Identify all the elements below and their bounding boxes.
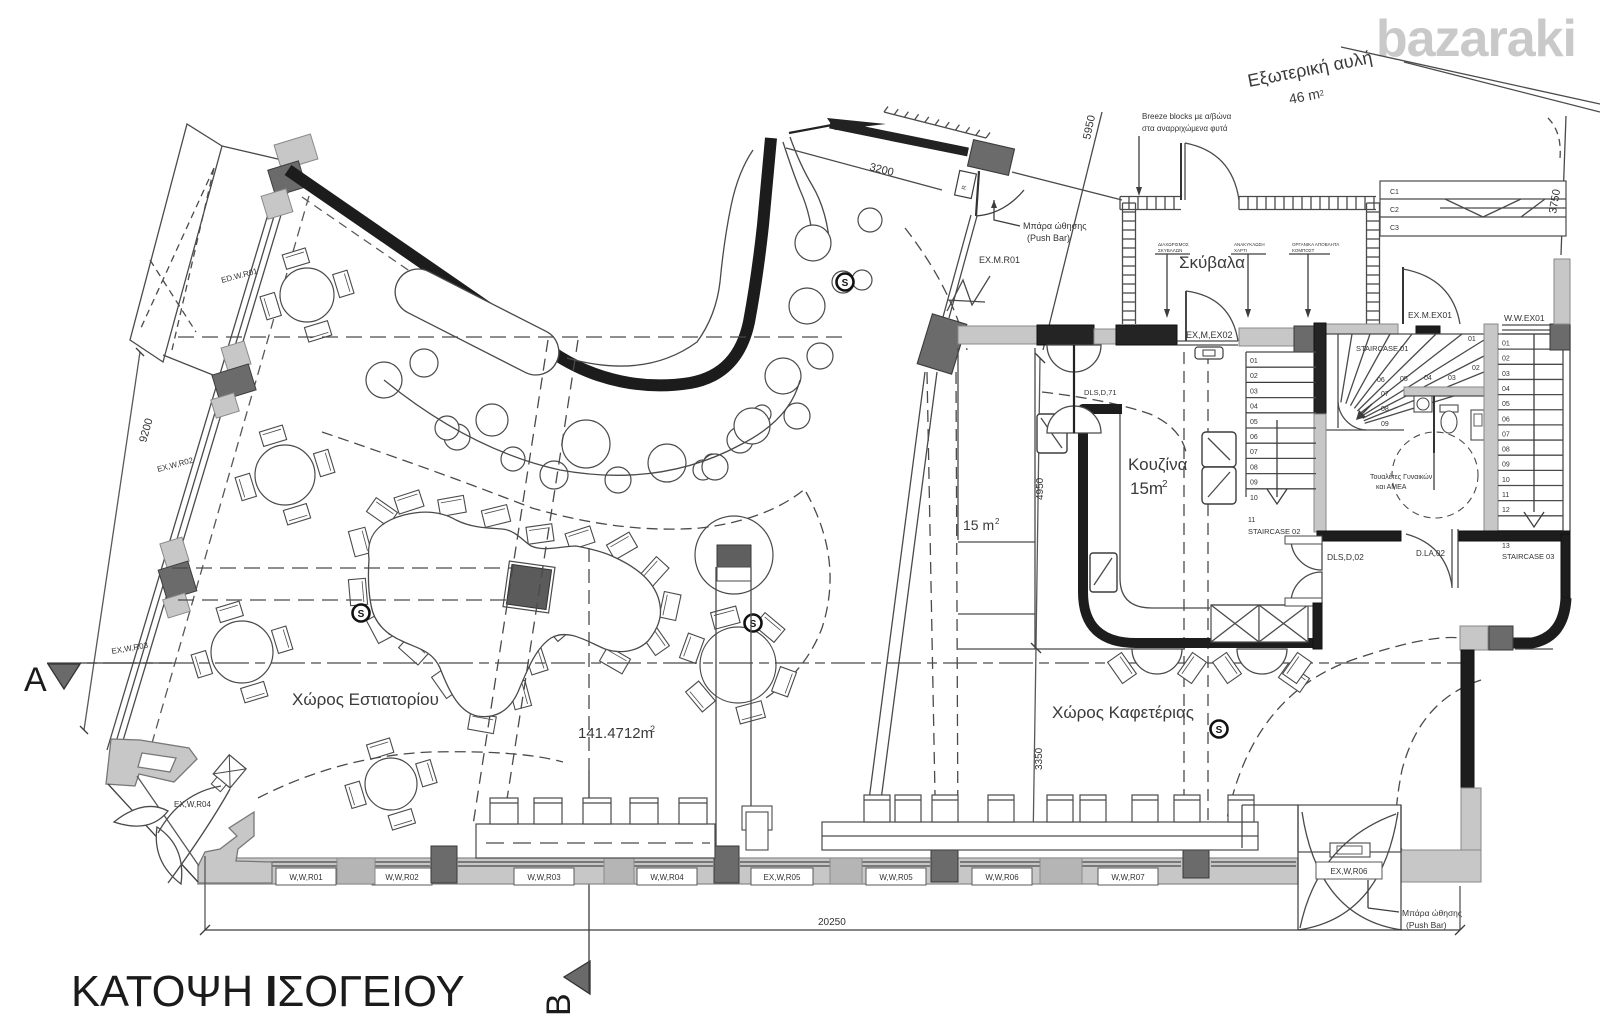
svg-text:09: 09: [1502, 462, 1510, 469]
svg-text:15 m: 15 m: [963, 517, 994, 533]
svg-text:C1: C1: [1390, 189, 1399, 196]
svg-text:S: S: [358, 609, 365, 620]
svg-text:Κουζίνα: Κουζίνα: [1128, 455, 1188, 474]
svg-text:S: S: [842, 278, 849, 289]
svg-text:ΣΚΥΒΑΛΩΝ: ΣΚΥΒΑΛΩΝ: [1158, 248, 1182, 253]
svg-text:06: 06: [1250, 434, 1258, 441]
svg-text:EX.M.EX01: EX.M.EX01: [1408, 310, 1452, 320]
svg-text:D.LA,02: D.LA,02: [1416, 549, 1445, 558]
svg-text:07: 07: [1381, 391, 1389, 398]
svg-text:08: 08: [1502, 447, 1510, 454]
svg-text:04: 04: [1424, 375, 1432, 382]
svg-text:(Push Bar): (Push Bar): [1027, 233, 1070, 243]
svg-text:10: 10: [1502, 477, 1510, 484]
svg-text:15m: 15m: [1130, 479, 1163, 498]
svg-text:W,W,R04: W,W,R04: [650, 873, 684, 882]
svg-text:W,W,R05: W,W,R05: [879, 873, 913, 882]
svg-text:Χώρος Καφετέριας: Χώρος Καφετέριας: [1052, 703, 1194, 722]
svg-text:Χώρος Εστιατορίου: Χώρος Εστιατορίου: [292, 690, 439, 709]
svg-text:EX.M.R01: EX.M.R01: [979, 255, 1020, 265]
svg-text:STAIRCASE 01: STAIRCASE 01: [1356, 344, 1408, 353]
svg-text:05: 05: [1502, 401, 1510, 408]
svg-text:3350: 3350: [1034, 747, 1045, 770]
svg-text:09: 09: [1250, 480, 1258, 487]
svg-text:20250: 20250: [818, 917, 846, 928]
svg-text:Breeze blocks με α/βώνα: Breeze blocks με α/βώνα: [1142, 112, 1232, 121]
svg-text:05: 05: [1250, 419, 1258, 426]
svg-text:10: 10: [1250, 495, 1258, 502]
svg-text:05: 05: [1400, 376, 1408, 383]
svg-text:04: 04: [1250, 404, 1258, 411]
svg-text:και ΑΜΕΑ: και ΑΜΕΑ: [1376, 484, 1407, 491]
svg-text:Μπάρα ώθησης: Μπάρα ώθησης: [1023, 221, 1087, 231]
svg-text:01: 01: [1468, 336, 1476, 343]
svg-text:Σκύβαλα: Σκύβαλα: [1179, 253, 1245, 272]
svg-text:ΔΙΑΧΩΡΙΣΜΟΣ: ΔΙΑΧΩΡΙΣΜΟΣ: [1158, 242, 1189, 247]
svg-text:02: 02: [1472, 365, 1480, 372]
svg-text:DLS,D,71: DLS,D,71: [1084, 388, 1117, 397]
svg-text:ΧΑΡΤΙ: ΧΑΡΤΙ: [1234, 248, 1247, 253]
svg-text:EX,W,R06: EX,W,R06: [1331, 867, 1368, 876]
svg-text:03: 03: [1448, 375, 1456, 382]
svg-text:ΚΟΜΠΟΣΤ: ΚΟΜΠΟΣΤ: [1292, 248, 1315, 253]
svg-text:13: 13: [1502, 543, 1510, 550]
svg-text:03: 03: [1502, 371, 1510, 378]
svg-text:EX,W,R05: EX,W,R05: [764, 873, 801, 882]
svg-text:C2: C2: [1390, 207, 1399, 214]
svg-text:03: 03: [1250, 388, 1258, 395]
svg-text:DLS,D,02: DLS,D,02: [1327, 552, 1364, 562]
svg-text:07: 07: [1502, 431, 1510, 438]
svg-text:08: 08: [1381, 406, 1389, 413]
svg-text:01: 01: [1502, 341, 1510, 348]
svg-text:ΑΝΑΚΥΚΛΩΣΗ: ΑΝΑΚΥΚΛΩΣΗ: [1234, 242, 1265, 247]
svg-text:STAIRCASE 02: STAIRCASE 02: [1248, 527, 1300, 536]
svg-text:W,W,R07: W,W,R07: [1111, 873, 1145, 882]
svg-text:04: 04: [1502, 386, 1510, 393]
svg-text:EX,M,EX02: EX,M,EX02: [1186, 330, 1233, 340]
svg-text:STAIRCASE 03: STAIRCASE 03: [1502, 552, 1554, 561]
svg-text:01: 01: [1250, 358, 1258, 365]
svg-text:ΚΑΤΟΨΗ ΙΣΟΓΕΙΟΥ: ΚΑΤΟΨΗ ΙΣΟΓΕΙΟΥ: [71, 968, 465, 1016]
svg-text:bazaraki: bazaraki: [1376, 10, 1576, 68]
svg-text:02: 02: [1502, 356, 1510, 363]
svg-text:09: 09: [1381, 421, 1389, 428]
svg-text:4950: 4950: [1035, 477, 1046, 500]
svg-text:A: A: [24, 661, 47, 699]
svg-text:2: 2: [995, 517, 1000, 526]
svg-text:12: 12: [1502, 507, 1510, 514]
svg-text:Τουαλέτες Γυναικών: Τουαλέτες Γυναικών: [1370, 473, 1433, 481]
svg-text:11: 11: [1502, 492, 1509, 499]
svg-text:02: 02: [1250, 373, 1258, 380]
svg-text:C3: C3: [1390, 225, 1399, 232]
svg-text:07: 07: [1250, 449, 1258, 456]
svg-text:11: 11: [1248, 517, 1255, 524]
svg-text:ΟΡΓΑΝΙΚΑ ΑΠΟΒΛΗΤΑ: ΟΡΓΑΝΙΚΑ ΑΠΟΒΛΗΤΑ: [1292, 242, 1339, 247]
svg-text:Μπάρα ώθησης: Μπάρα ώθησης: [1402, 908, 1462, 918]
svg-text:W.W.EX01: W.W.EX01: [1504, 313, 1545, 323]
svg-text:S: S: [1216, 725, 1223, 736]
svg-text:08: 08: [1250, 464, 1258, 471]
svg-text:W,W,R01: W,W,R01: [289, 873, 323, 882]
svg-text:(Push Bar): (Push Bar): [1406, 920, 1447, 930]
svg-text:06: 06: [1502, 416, 1510, 423]
svg-text:2: 2: [650, 724, 655, 734]
svg-text:W,W,R03: W,W,R03: [527, 873, 561, 882]
svg-text:06: 06: [1377, 377, 1385, 384]
svg-text:2: 2: [1162, 479, 1168, 490]
svg-text:W,W,R06: W,W,R06: [985, 873, 1019, 882]
svg-text:EX,W,R04: EX,W,R04: [174, 800, 211, 809]
svg-text:στα αναρριχώμενα φυτά: στα αναρριχώμενα φυτά: [1142, 124, 1228, 133]
svg-text:W,W,R02: W,W,R02: [385, 873, 419, 882]
svg-text:B: B: [540, 993, 578, 1016]
